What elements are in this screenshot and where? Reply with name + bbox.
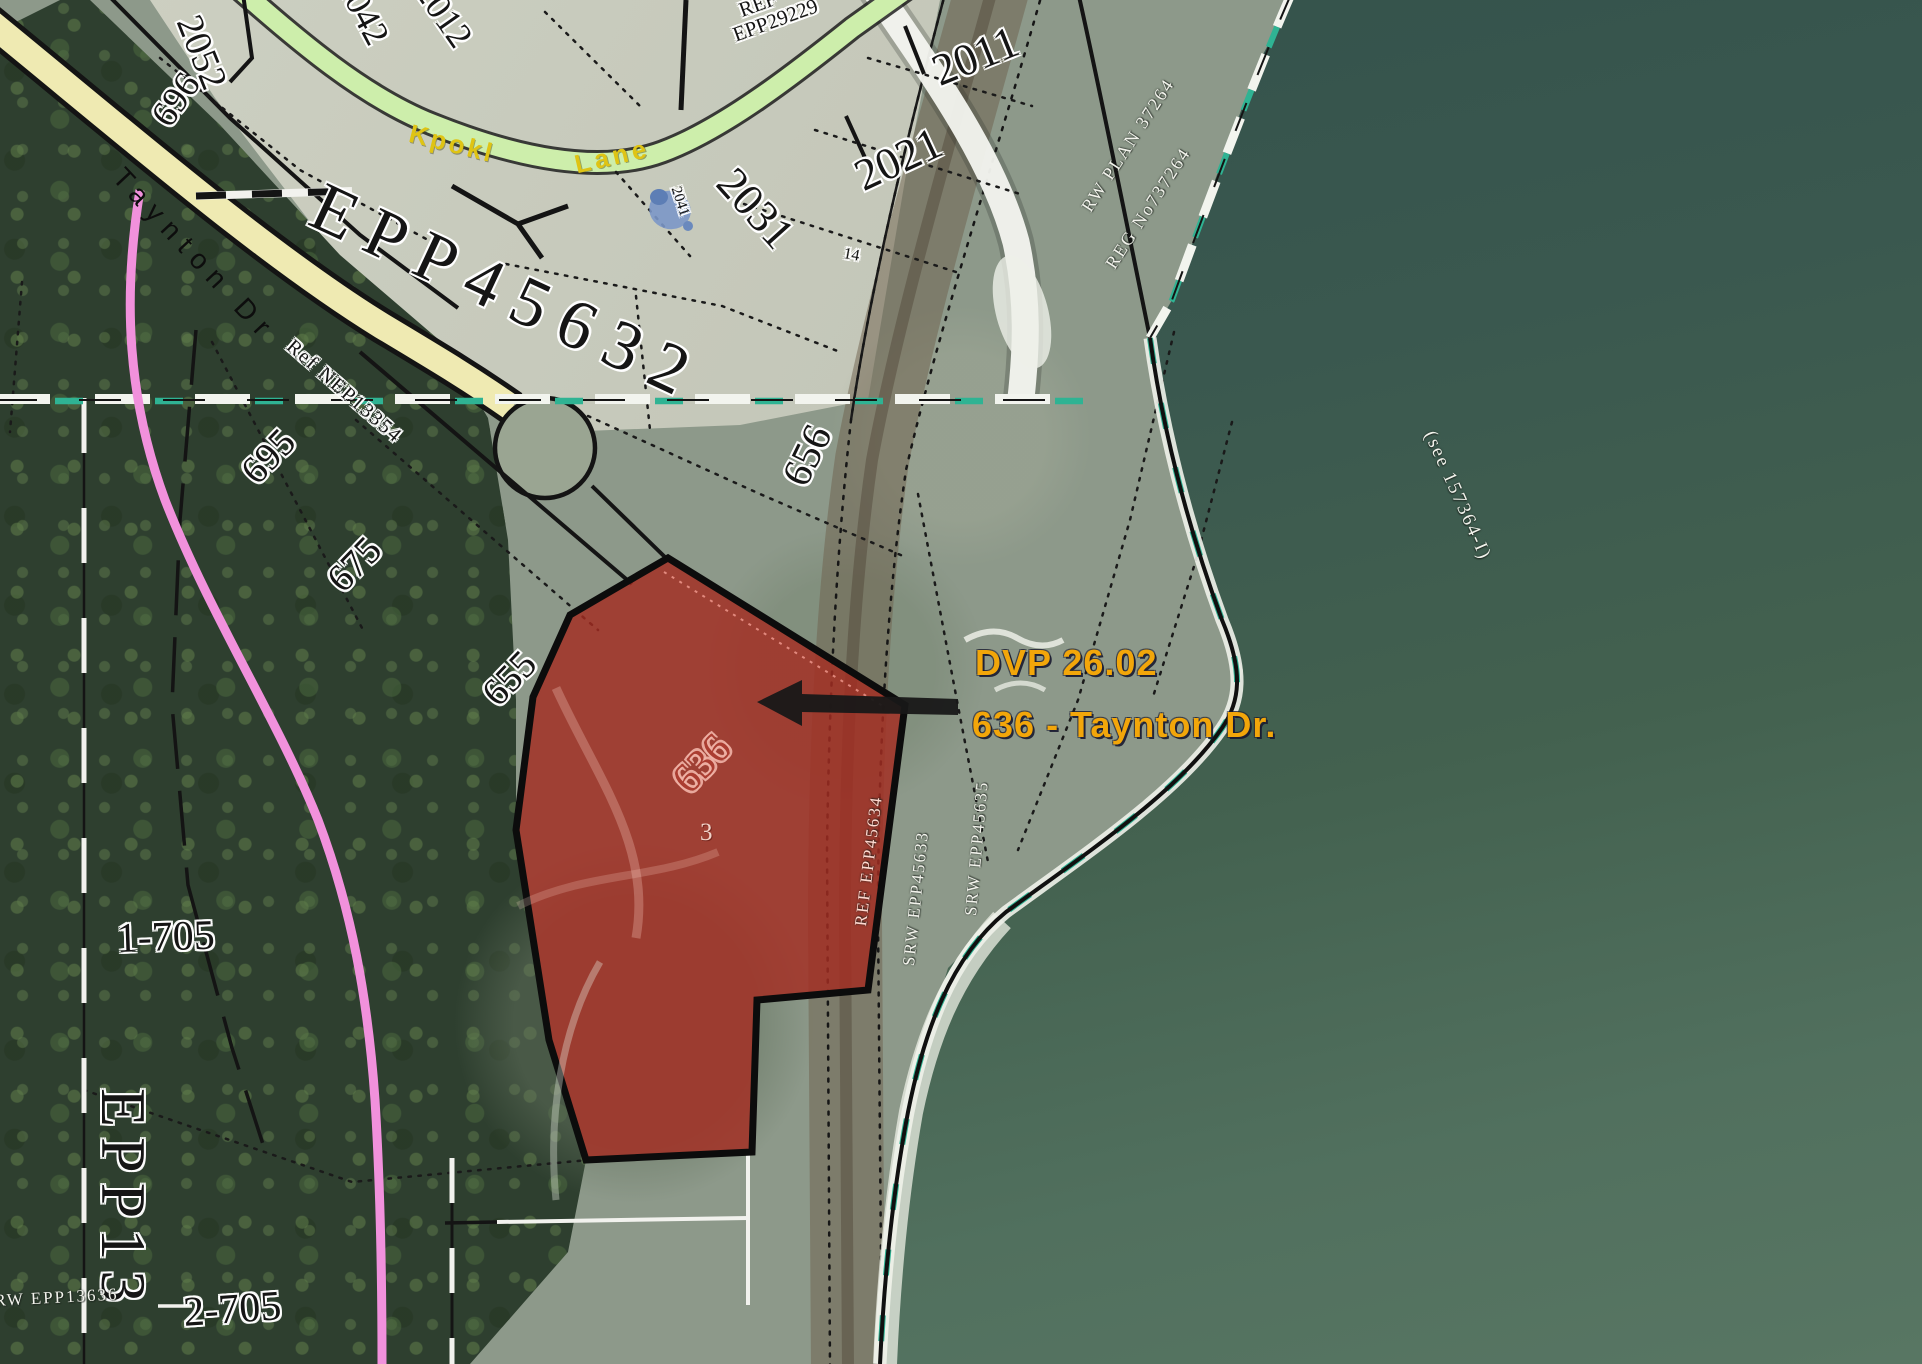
callout-title: DVP 26.02	[975, 645, 1157, 681]
cul-de-sac-bulb	[495, 398, 595, 498]
legal-boundary-teal	[0, 399, 1085, 401]
callout-address: 636 - Taynton Dr.	[972, 707, 1276, 743]
plan-label-epp13-vertical: EPP13	[91, 1088, 155, 1312]
lot-number-2-705: 2-705	[182, 1285, 283, 1334]
map-linework	[0, 0, 1922, 1364]
shoreline-main	[880, 338, 1237, 1364]
lot-number-14: 14	[842, 246, 861, 265]
lot-number-3: 3	[700, 820, 713, 845]
utility-line-pink	[130, 190, 382, 1364]
lot-number-1-705: 1-705	[116, 915, 215, 960]
aerial-map-canvas: DVP 26.02 636 - Taynton Dr. Taynton Dr K…	[0, 0, 1922, 1364]
kpokl-lane-road	[238, 0, 908, 163]
